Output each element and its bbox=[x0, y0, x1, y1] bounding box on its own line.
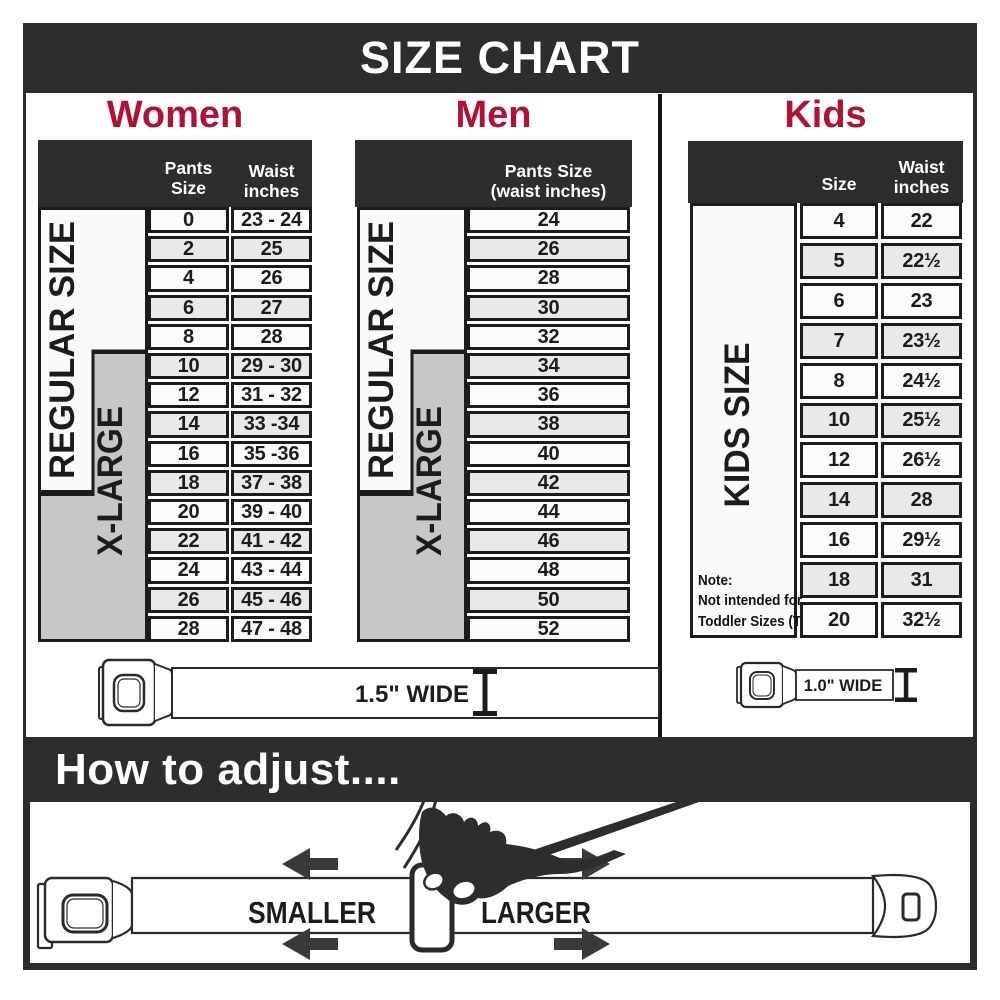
chart-frame: SIZE CHART Women Men Kids Pants Size Wai… bbox=[23, 23, 977, 970]
size-cell: 29½ bbox=[881, 522, 962, 558]
size-cell: 16 bbox=[800, 522, 878, 558]
size-cell: 50 bbox=[467, 587, 630, 613]
size-cell: 10 bbox=[148, 353, 229, 379]
kids-buckle-tab bbox=[783, 666, 796, 704]
men-col-header-line2: (waist inches) bbox=[467, 181, 630, 201]
women-men-belt-illustration: 1.5" WIDE bbox=[95, 655, 660, 730]
size-cell: 47 - 48 bbox=[231, 616, 312, 642]
adjust-buckle-slot-inner bbox=[67, 899, 103, 928]
size-cell: 16 bbox=[148, 441, 229, 467]
size-cell: 7 bbox=[800, 323, 878, 359]
size-cell: 46 bbox=[467, 528, 630, 554]
size-cell: 44 bbox=[467, 499, 630, 525]
adjust-heading: How to adjust.... bbox=[55, 745, 401, 795]
size-cell: 38 bbox=[467, 411, 630, 437]
kids-size-label: KIDS SIZE bbox=[718, 343, 757, 508]
size-cell: 32½ bbox=[881, 602, 962, 638]
size-cell: 2 bbox=[148, 236, 229, 262]
title-banner: SIZE CHART bbox=[23, 23, 977, 93]
kids-belt-illustration: 1.0" WIDE bbox=[735, 655, 945, 715]
kids-col1-header: Size bbox=[800, 174, 878, 194]
size-cell: 33 -34 bbox=[231, 411, 312, 437]
size-cell: 4 bbox=[800, 203, 878, 239]
size-cell: 24 bbox=[148, 557, 229, 583]
kids-col2-header-line2: inches bbox=[881, 177, 962, 197]
size-cell: 22½ bbox=[881, 243, 962, 279]
belt-buckle-tab bbox=[155, 664, 172, 721]
size-cell: 12 bbox=[800, 442, 878, 478]
men-size-label-graphic: REGULAR SIZE X-LARGE bbox=[357, 207, 467, 642]
kids-note: Note: Not intended for Toddler Sizes (T) bbox=[698, 571, 806, 632]
size-cell: 37 - 38 bbox=[231, 470, 312, 496]
size-cell: 20 bbox=[800, 602, 878, 638]
size-cell: 52 bbox=[467, 616, 630, 642]
size-cell: 26½ bbox=[881, 442, 962, 478]
size-cell: 35 -36 bbox=[231, 441, 312, 467]
kids-width-measure-icon bbox=[895, 668, 917, 702]
women-col2-header: Waist inches bbox=[231, 161, 312, 201]
size-cell: 31 - 32 bbox=[231, 382, 312, 408]
size-cell: 22 bbox=[148, 528, 229, 554]
size-cell: 23½ bbox=[881, 323, 962, 359]
adjust-tip-slot bbox=[903, 894, 919, 920]
size-cell: 27 bbox=[231, 295, 312, 321]
size-cell: 5 bbox=[800, 243, 878, 279]
size-cell: 6 bbox=[800, 283, 878, 319]
size-cell: 24½ bbox=[881, 363, 962, 399]
larger-label: LARGER bbox=[481, 895, 591, 930]
size-cell: 23 - 24 bbox=[231, 207, 312, 233]
size-cell: 10 bbox=[800, 403, 878, 439]
page-title: SIZE CHART bbox=[360, 32, 640, 84]
adjust-buckle-tab bbox=[113, 881, 132, 938]
size-cell: 42 bbox=[467, 470, 630, 496]
women-xlarge-label: X-LARGE bbox=[91, 406, 130, 556]
kids-table-header: Size Waist inches bbox=[688, 141, 963, 203]
size-cell: 48 bbox=[467, 557, 630, 583]
size-cell: 34 bbox=[467, 353, 630, 379]
women-table-header: Pants Size Waist inches bbox=[38, 140, 312, 207]
men-regular-size-label: REGULAR SIZE bbox=[362, 221, 401, 479]
kids-buckle-slot-inner bbox=[753, 675, 771, 696]
size-cell: 28 bbox=[467, 265, 630, 291]
size-cell: 39 - 40 bbox=[231, 499, 312, 525]
size-cell: 26 bbox=[467, 236, 630, 262]
belt-buckle-slot-inner bbox=[118, 679, 140, 707]
kids-belt-width-label: 1.0" WIDE bbox=[804, 677, 882, 695]
kids-size-table: 422522½623723½824½1025½1226½14281629½183… bbox=[800, 203, 962, 638]
size-cell: 23 bbox=[881, 283, 962, 319]
size-cell: 25½ bbox=[881, 403, 962, 439]
adjust-illustration-area: SMALLER LARGER bbox=[23, 802, 977, 970]
size-cell: 22 bbox=[881, 203, 962, 239]
size-cell: 0 bbox=[148, 207, 229, 233]
size-cell: 12 bbox=[148, 382, 229, 408]
size-cell: 36 bbox=[467, 382, 630, 408]
women-regular-size-label: REGULAR SIZE bbox=[43, 221, 82, 479]
men-col-header: Pants Size (waist inches) bbox=[467, 161, 630, 201]
size-cell: 25 bbox=[231, 236, 312, 262]
size-cell: 43 - 44 bbox=[231, 557, 312, 583]
size-cell: 28 bbox=[148, 616, 229, 642]
arrow-left-top-icon bbox=[282, 848, 338, 880]
section-divider bbox=[658, 94, 662, 737]
size-cell: 6 bbox=[148, 295, 229, 321]
size-cell: 31 bbox=[881, 562, 962, 598]
women-col2-header-line1: Waist bbox=[231, 161, 312, 181]
men-table-header: Pants Size (waist inches) bbox=[355, 140, 632, 207]
kids-note-line1: Note: bbox=[698, 571, 806, 591]
size-cell: 20 bbox=[148, 499, 229, 525]
kids-col2-header-line1: Waist bbox=[881, 157, 962, 177]
size-cell: 18 bbox=[800, 562, 878, 598]
men-col-header-line1: Pants Size bbox=[467, 161, 630, 181]
size-cell: 29 - 30 bbox=[231, 353, 312, 379]
size-cell: 14 bbox=[800, 482, 878, 518]
size-cell: 45 - 46 bbox=[231, 587, 312, 613]
kids-col2-header: Waist inches bbox=[881, 157, 962, 197]
belt-width-label: 1.5" WIDE bbox=[355, 681, 469, 708]
kids-size-label-box: KIDS SIZE Note: Not intended for Toddler… bbox=[690, 203, 797, 638]
size-cell: 26 bbox=[148, 587, 229, 613]
men-xlarge-label: X-LARGE bbox=[410, 406, 449, 556]
size-chart-page: SIZE CHART Women Men Kids Pants Size Wai… bbox=[0, 0, 1000, 1000]
adjust-banner: How to adjust.... bbox=[23, 737, 977, 802]
size-cell: 8 bbox=[148, 324, 229, 350]
size-cell: 26 bbox=[231, 265, 312, 291]
size-cell: 40 bbox=[467, 441, 630, 467]
women-col1-header: Pants Size bbox=[148, 158, 229, 198]
size-cell: 28 bbox=[231, 324, 312, 350]
kids-heading: Kids bbox=[688, 95, 963, 135]
size-cell: 8 bbox=[800, 363, 878, 399]
size-cell: 41 - 42 bbox=[231, 528, 312, 554]
women-col2-header-line2: inches bbox=[231, 181, 312, 201]
men-heading: Men bbox=[355, 95, 632, 135]
women-heading: Women bbox=[38, 95, 312, 135]
women-size-table: 023 - 242254266278281029 - 301231 - 3214… bbox=[148, 207, 312, 642]
adjust-belt-illustration: SMALLER LARGER bbox=[30, 802, 970, 963]
smaller-label: SMALLER bbox=[248, 895, 376, 930]
size-cell: 4 bbox=[148, 265, 229, 291]
men-size-table: 242628303234363840424446485052 bbox=[467, 207, 630, 642]
size-cell: 18 bbox=[148, 470, 229, 496]
size-cell: 28 bbox=[881, 482, 962, 518]
kids-note-line2: Not intended for bbox=[698, 591, 806, 611]
size-cell: 32 bbox=[467, 324, 630, 350]
women-size-label-graphic: REGULAR SIZE X-LARGE bbox=[38, 207, 148, 642]
size-cell: 14 bbox=[148, 411, 229, 437]
size-cell: 24 bbox=[467, 207, 630, 233]
size-cell: 30 bbox=[467, 295, 630, 321]
kids-note-line3: Toddler Sizes (T) bbox=[698, 612, 806, 632]
